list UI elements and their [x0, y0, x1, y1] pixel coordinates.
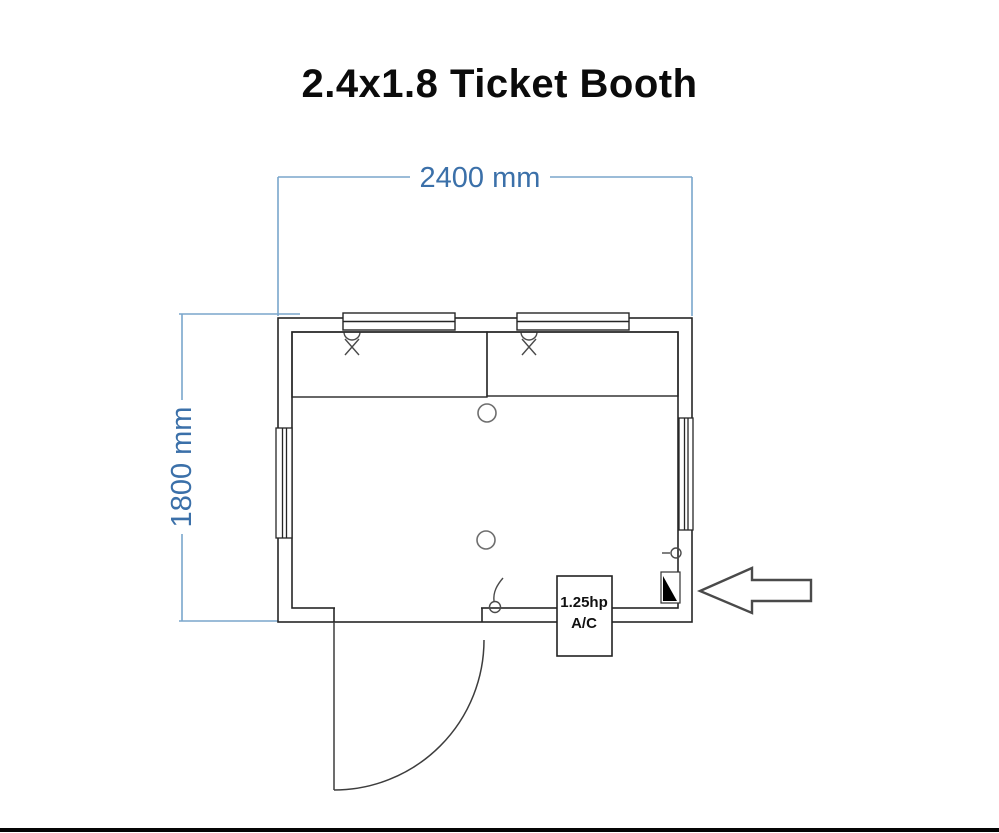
top-dimension — [278, 177, 692, 316]
x-marker-cross-right-icon — [522, 339, 536, 355]
ceiling-light-icon — [477, 531, 495, 549]
door-handle-hook — [494, 578, 503, 601]
height-dimension-label: 1800 mm — [166, 407, 198, 528]
door — [334, 622, 484, 790]
x-marker-cross-left-icon — [345, 339, 359, 355]
door-handle-circle — [490, 602, 501, 613]
wall-outer-outline — [278, 318, 692, 622]
floor-plan-drawing: 2400 mm 1800 mm — [0, 0, 999, 833]
electrical-panel-icon — [661, 572, 680, 603]
side-windows — [276, 418, 693, 538]
wall-switch-circle — [671, 548, 681, 558]
x-marker-arc-right-icon — [521, 332, 537, 340]
ac-unit-label-line2: A/C — [571, 615, 597, 632]
ceiling-lights — [477, 404, 496, 549]
door-opening — [335, 603, 481, 621]
ticket-window-markers — [344, 332, 537, 355]
width-dimension-label: 2400 mm — [420, 162, 541, 194]
counter-left-section — [292, 332, 487, 397]
left-wall-window — [276, 428, 292, 538]
ticket-windows — [343, 313, 629, 330]
counter-right-section — [487, 332, 678, 396]
right-wall-window — [679, 418, 693, 530]
x-marker-arc-left-icon — [344, 332, 360, 340]
booth-walls — [278, 318, 692, 622]
door-swing-arc — [334, 640, 484, 790]
bottom-border-line — [0, 828, 999, 832]
counter — [292, 332, 678, 397]
ceiling-light-icon — [478, 404, 496, 422]
ac-unit-label-line1: 1.25hp — [560, 594, 608, 611]
ac-unit: 1.25hp A/C — [557, 576, 612, 656]
entrance-arrow-icon — [700, 568, 811, 613]
wall-inner-outline — [292, 332, 678, 608]
